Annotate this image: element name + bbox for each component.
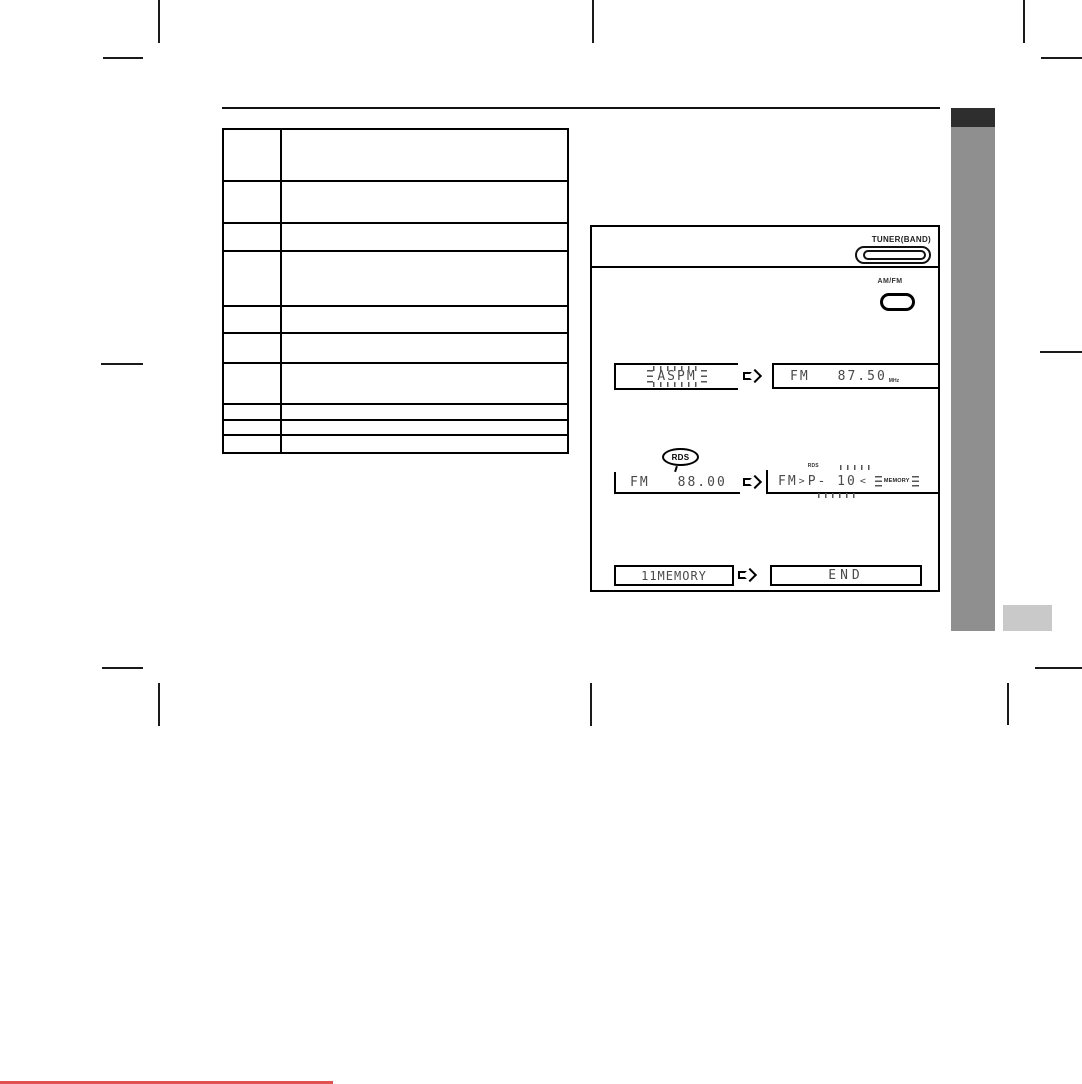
table-cell xyxy=(282,182,567,222)
table-cell xyxy=(282,252,567,305)
table-cell xyxy=(224,224,282,250)
crop-mark-top-right-horizontal xyxy=(1041,57,1082,59)
table-row xyxy=(224,364,567,405)
table-cell xyxy=(282,364,567,403)
lcd-display-fm-8800: FM 88.00 xyxy=(614,472,740,494)
table-row xyxy=(224,307,567,334)
lcd-unit-label: MHz xyxy=(889,378,899,384)
flash-rays-icon xyxy=(653,366,701,371)
table-cell xyxy=(224,130,282,180)
table-cell xyxy=(282,421,567,434)
flash-rays-icon xyxy=(701,370,707,383)
memory-label: MEMORY xyxy=(884,478,910,484)
amfm-button-label: AM/FM xyxy=(868,278,912,285)
chapter-edge-bar xyxy=(951,127,995,631)
crop-mark-bottom-left-horizontal xyxy=(102,667,143,669)
table-row xyxy=(224,182,567,224)
memory-flashing-badge: MEMORY xyxy=(875,476,919,487)
crop-mark-bottom-right-horizontal xyxy=(1035,667,1082,669)
page-corner-tab xyxy=(1003,605,1052,631)
flash-rays-icon xyxy=(653,382,701,387)
flash-rays-icon xyxy=(818,493,860,498)
lcd-display-fm-8750: FM 87.50 MHz xyxy=(772,363,938,389)
table-row xyxy=(224,130,567,182)
preset-number-stack: RDS P- 10 xyxy=(806,472,859,490)
flash-ray-close: < xyxy=(860,476,866,487)
crop-mark-middle-right-horizontal xyxy=(1040,351,1082,353)
tuner-band-button-icon xyxy=(855,246,931,264)
table-cell xyxy=(224,252,282,305)
table-cell xyxy=(224,421,282,434)
lcd-display-aspm-flashing: ASPM xyxy=(614,363,738,390)
lcd-text: 11MEMORY xyxy=(641,569,707,583)
crop-mark-top-left-horizontal xyxy=(103,57,143,59)
crop-mark-bottom-center-vertical xyxy=(590,683,592,726)
right-arrow-icon xyxy=(743,474,766,490)
key-description-table xyxy=(222,128,569,454)
table-cell xyxy=(224,334,282,362)
section-divider-rule xyxy=(222,107,940,109)
flash-rays-icon xyxy=(912,476,919,487)
table-cell xyxy=(224,436,282,452)
right-arrow-icon xyxy=(743,368,766,384)
table-cell xyxy=(282,405,567,419)
lcd-frequency: 88.00 xyxy=(678,475,727,490)
lcd-display-preset-memory: FM > RDS P- 10 < MEMORY xyxy=(766,470,938,494)
lcd-band: FM xyxy=(778,474,798,489)
table-cell xyxy=(282,130,567,180)
lcd-display-end: END xyxy=(770,565,922,586)
table-cell xyxy=(282,436,567,452)
table-row xyxy=(224,334,567,364)
tuner-band-button-label: TUNER(BAND) xyxy=(872,235,931,244)
crop-mark-bottom-left-vertical xyxy=(158,683,160,726)
lcd-frequency: 87.50 xyxy=(838,369,887,384)
lcd-preset-number: P- 10 xyxy=(808,474,857,489)
lcd-band: FM xyxy=(630,475,650,490)
crop-mark-top-left-vertical xyxy=(158,0,160,43)
crop-mark-top-center-vertical xyxy=(592,0,594,43)
table-cell xyxy=(282,307,567,332)
flash-rays-icon xyxy=(875,476,882,487)
flash-ray-open: > xyxy=(799,476,805,487)
amfm-button-icon xyxy=(880,293,915,311)
lcd-display-memory-count: 11MEMORY xyxy=(614,565,734,586)
panel-step1-section: TUNER(BAND) xyxy=(592,227,938,268)
rds-mini-label: RDS xyxy=(808,463,819,469)
tuner-instruction-panel: TUNER(BAND) AM/FM ASPM FM 87.50 MHz RDS … xyxy=(590,225,940,592)
table-cell xyxy=(282,224,567,250)
table-row xyxy=(224,224,567,252)
table-row xyxy=(224,252,567,307)
table-cell xyxy=(224,364,282,403)
crop-mark-top-right-vertical xyxy=(1023,0,1025,43)
table-cell xyxy=(282,334,567,362)
scanned-manual-page: { "colors": { "ink": "#000000", "lcd_ink… xyxy=(0,0,1082,1084)
table-row xyxy=(224,436,567,452)
crop-mark-middle-left-horizontal xyxy=(101,363,143,365)
tuner-band-button-inner-outline xyxy=(863,250,926,260)
chapter-tab-dark xyxy=(951,108,995,127)
table-cell xyxy=(224,405,282,419)
rds-callout-balloon: RDS xyxy=(662,448,699,466)
lcd-band: FM xyxy=(790,369,810,384)
right-arrow-icon xyxy=(738,567,761,583)
flash-rays-icon xyxy=(840,465,874,470)
lcd-text: END xyxy=(828,568,863,583)
table-cell xyxy=(224,307,282,332)
crop-mark-bottom-right-vertical xyxy=(1007,683,1009,725)
table-row xyxy=(224,421,567,436)
table-cell xyxy=(224,182,282,222)
table-row xyxy=(224,405,567,421)
